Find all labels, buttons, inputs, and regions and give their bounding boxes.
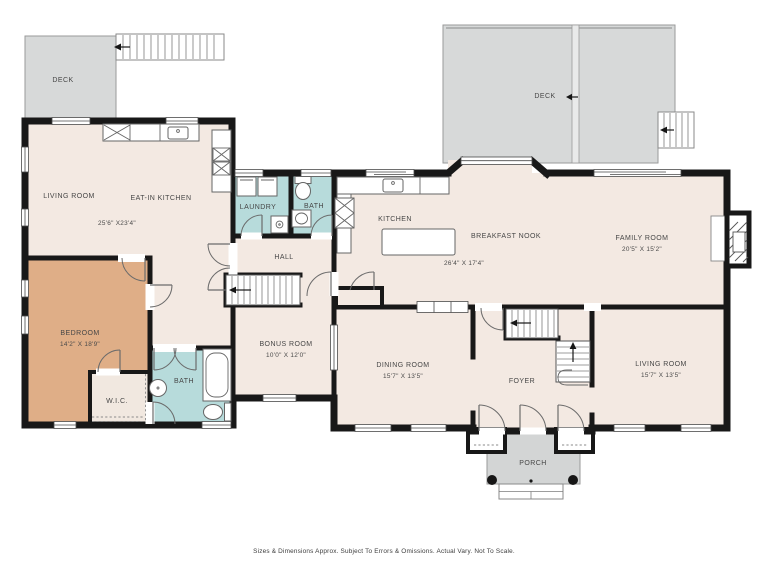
stove bbox=[335, 198, 354, 228]
floor-plan-page: DECK DECK LIVING ROOM EAT-IN KITCHEN 25'… bbox=[0, 0, 768, 576]
porch-label: PORCH bbox=[519, 460, 547, 467]
bedroom-dims: 14'2" X 18'9" bbox=[60, 341, 100, 348]
hall-label: HALL bbox=[274, 254, 293, 261]
breakfast-nook-label: BREAKFAST NOOK bbox=[471, 233, 541, 240]
eat-in-kitchen-label: EAT-IN KITCHEN bbox=[130, 195, 191, 202]
living-upper-dims: 25'6" X23'4" bbox=[98, 220, 136, 227]
deck-stairs-left bbox=[116, 34, 224, 60]
porch-column bbox=[568, 475, 578, 485]
family-room-label: FAMILY ROOM bbox=[616, 235, 669, 242]
disclaimer-text: Sizes & Dimensions Approx. Subject To Er… bbox=[253, 548, 515, 555]
wic-label: W.I.C. bbox=[106, 398, 128, 405]
pantry-closet bbox=[336, 288, 382, 307]
family-room-dims: 20'5" X 15'2" bbox=[622, 246, 662, 253]
laundry-sink bbox=[271, 216, 288, 233]
toilet bbox=[204, 405, 223, 420]
floor-plan-drawing: DECK DECK LIVING ROOM EAT-IN KITCHEN 25'… bbox=[0, 0, 768, 576]
deck-top-right bbox=[443, 25, 694, 163]
kitchen-island bbox=[382, 229, 455, 255]
porch-column bbox=[487, 475, 497, 485]
bonus-label: BONUS ROOM bbox=[259, 341, 312, 348]
hall-stairs bbox=[226, 275, 300, 305]
deck-divider bbox=[572, 25, 579, 163]
deck-top-left bbox=[25, 34, 224, 118]
bonus-dims: 10'0" X 12'0" bbox=[266, 352, 306, 359]
fireplace bbox=[711, 213, 749, 266]
breakfast-nook-dims: 26'4" X 17'4" bbox=[444, 260, 484, 267]
bath-lower-label: BATH bbox=[174, 378, 194, 385]
living-lower-dims: 15'7" X 13'5" bbox=[641, 372, 681, 379]
dining-room-dims: 15'7" X 13'5" bbox=[383, 373, 423, 380]
deck-right-label: DECK bbox=[534, 93, 555, 100]
living-upper-label: LIVING ROOM bbox=[43, 193, 95, 200]
bedroom-label: BEDROOM bbox=[60, 330, 99, 337]
living-lower-label: LIVING ROOM bbox=[635, 361, 687, 368]
bath-sink bbox=[150, 380, 167, 397]
laundry-label: LAUNDRY bbox=[240, 204, 276, 211]
dining-room-label: DINING ROOM bbox=[376, 362, 429, 369]
kitchen-sink bbox=[168, 127, 188, 139]
kitchen-sink bbox=[383, 179, 403, 192]
foyer-label: FOYER bbox=[509, 378, 535, 385]
bath-upper-label: BATH bbox=[304, 203, 324, 210]
kitchen-label: KITCHEN bbox=[378, 216, 412, 223]
deck-left-label: DECK bbox=[52, 77, 73, 84]
toilet-tank bbox=[225, 403, 232, 421]
